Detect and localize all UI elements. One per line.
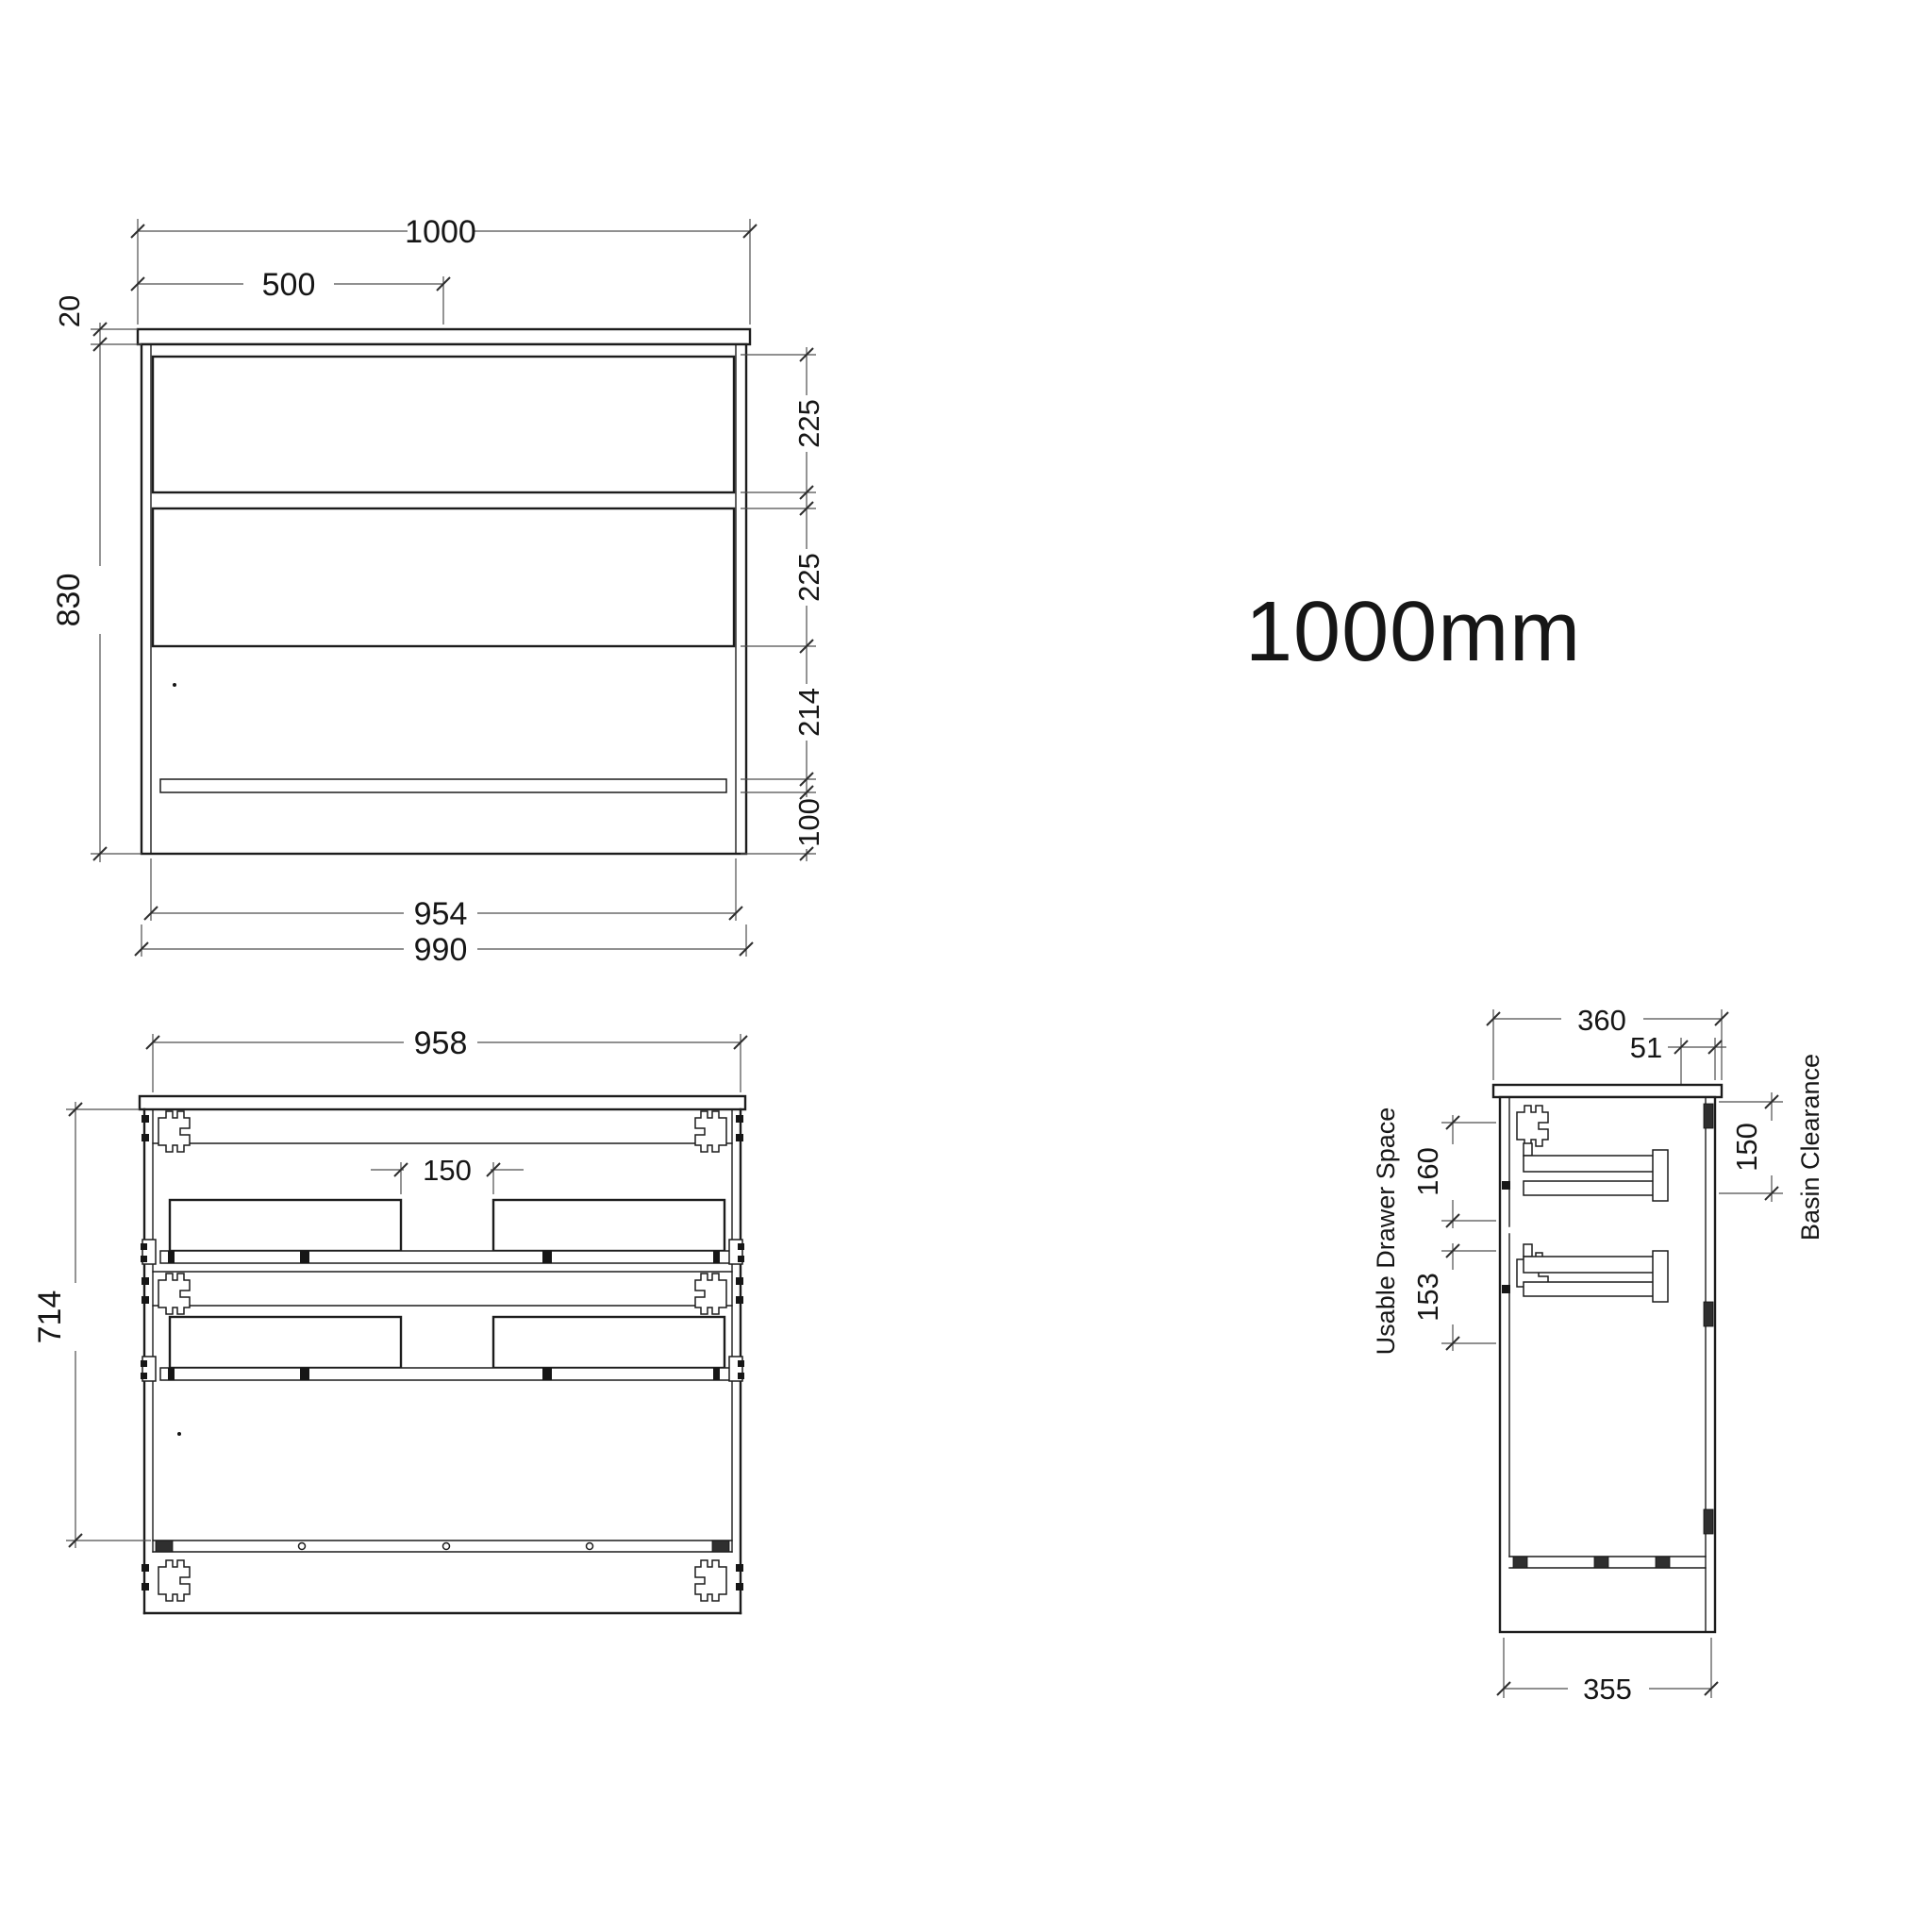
size-title: 1000mm (1245, 585, 1581, 679)
drawer2-internal (141, 1317, 744, 1381)
dim-label-body-width: 990 (414, 932, 468, 968)
dim-label-half-width: 500 (262, 267, 316, 303)
usable-drawer-space-label: Usable Drawer Space (1372, 1108, 1400, 1356)
dim-base-depth: 355 (1497, 1638, 1718, 1706)
dim-drawer1-space: 160 (1411, 1115, 1496, 1228)
front-elevation-view: 1000 500 20 830 (51, 214, 825, 968)
internal-front-view: 958 150 (32, 1025, 747, 1613)
dim-label-depth: 360 (1577, 1004, 1626, 1037)
reference-dot (173, 683, 176, 687)
dim-label-centre-gap: 150 (423, 1154, 472, 1187)
assembly-clip-icon (695, 1111, 726, 1152)
technical-drawing-page: 1000 500 20 830 (0, 0, 1932, 1932)
dim-label-overall-width: 1000 (405, 214, 476, 250)
kick-panel (142, 1560, 743, 1613)
dim-depth: 360 (1487, 1004, 1728, 1080)
dim-internal-height: 714 (32, 1102, 151, 1548)
dim-left-heights: 20 830 (51, 295, 142, 862)
dim-label-base-depth: 355 (1583, 1673, 1632, 1706)
bottom-panel (153, 1541, 732, 1552)
assembly-clip-icon (695, 1274, 726, 1314)
dim-half-width: 500 (131, 267, 450, 325)
reference-dot (177, 1432, 181, 1436)
dim-drawer2-space: 153 (1411, 1243, 1496, 1351)
dim-internal-width: 958 (146, 1025, 747, 1092)
assembly-clip-icon (695, 1560, 726, 1601)
cabinet-body (1500, 1097, 1715, 1632)
dim-label-carcass-width: 954 (414, 896, 468, 932)
drawer-front-2 (153, 508, 734, 646)
dim-right-section-chain: 225 225 214 100 (741, 347, 825, 861)
dim-label-height: 830 (51, 574, 87, 627)
counter-top (140, 1096, 745, 1109)
basin-clearance-label: Basin Clearance (1796, 1054, 1824, 1241)
technical-drawing-canvas: 1000 500 20 830 (0, 0, 1932, 1932)
dim-label-drawer1: 225 (792, 399, 825, 448)
counter-top (1493, 1085, 1722, 1097)
assembly-clip-icon (158, 1560, 190, 1601)
dim-label-top-thickness: 20 (53, 295, 86, 327)
bottom-rail (160, 779, 726, 792)
dim-label-internal-height: 714 (32, 1291, 68, 1344)
dim-carcass-width: 954 (144, 858, 742, 932)
dim-label-waste-offset: 51 (1630, 1031, 1662, 1064)
dim-label-drawer1-space: 160 (1411, 1147, 1444, 1196)
dim-label-internal-width: 958 (414, 1025, 468, 1061)
dim-label-drawer2: 225 (792, 553, 825, 602)
drawer1-internal (141, 1200, 744, 1264)
dim-label-drawer2-space: 153 (1411, 1273, 1444, 1322)
counter-top (138, 329, 750, 344)
side-section-view: 360 51 (1372, 1004, 1824, 1706)
assembly-clip-icon (158, 1274, 190, 1314)
dim-label-basin-clearance: 150 (1730, 1123, 1763, 1172)
assembly-clip-icon (158, 1111, 190, 1152)
dim-centre-gap: 150 (371, 1154, 524, 1194)
dim-label-kick: 100 (792, 798, 825, 847)
dim-label-lower-section: 214 (792, 688, 825, 737)
dim-basin-clearance: 150 (1719, 1092, 1783, 1202)
drawer-front-1 (153, 357, 734, 492)
